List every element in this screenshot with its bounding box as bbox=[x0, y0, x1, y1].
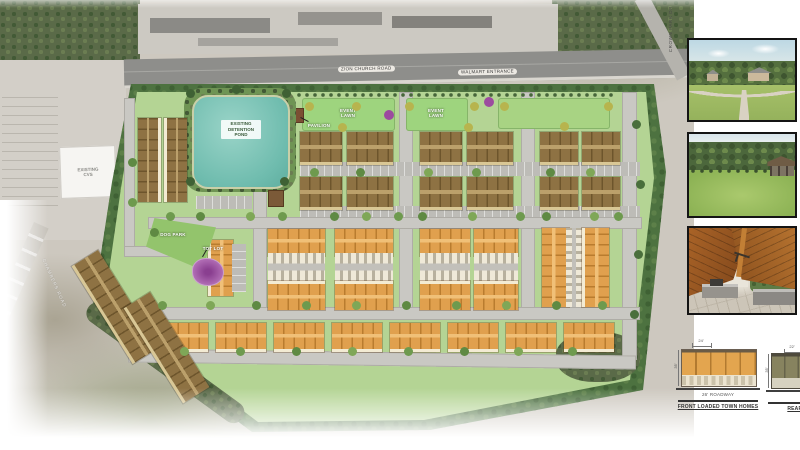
townhome-row-front bbox=[420, 229, 470, 256]
event-lawn-label-2: EVENT LAWN bbox=[424, 108, 448, 118]
photo1-treeline bbox=[689, 61, 795, 87]
townhome-row-front bbox=[335, 281, 393, 310]
garage-court bbox=[335, 253, 393, 281]
townhome-row-front bbox=[542, 228, 569, 307]
rear-title-bar bbox=[768, 402, 800, 404]
photo3-counter-left bbox=[702, 284, 738, 298]
townhome-row-front bbox=[268, 281, 325, 310]
front-elevation-building bbox=[682, 350, 756, 386]
townhome-row-rear bbox=[540, 132, 578, 165]
townhome-row-rear bbox=[420, 177, 462, 210]
photo3-counter-right bbox=[753, 289, 795, 305]
pond-label: EXISTING DETENTION POND bbox=[221, 120, 261, 139]
garage-court bbox=[420, 253, 470, 281]
townhome-row-front bbox=[506, 323, 556, 352]
townhome-row-front bbox=[274, 323, 324, 352]
townhome-row-front bbox=[390, 323, 440, 352]
entrance-road-label: WALMART ENTRANCE bbox=[458, 68, 517, 75]
townhome-row-front bbox=[582, 228, 609, 307]
event-lawn-label-1: EVENT LAWN bbox=[336, 108, 360, 118]
townhome-row-rear bbox=[138, 118, 161, 202]
existing-cvs-label: EXISTING CVS bbox=[74, 166, 102, 178]
photo-community-park bbox=[687, 38, 797, 122]
townhome-row-front bbox=[332, 323, 382, 352]
front-title-bar bbox=[678, 400, 758, 402]
photo2-lawn bbox=[689, 170, 795, 216]
photo1-hut-walls bbox=[707, 74, 718, 81]
townhome-row-rear bbox=[300, 177, 342, 210]
townhome-row-front bbox=[420, 281, 470, 310]
existing-cvs-building: EXISTING CVS bbox=[59, 145, 117, 199]
site-plan-sheet: EXISTING CVS CHAMBERS ROAD ZION CHURCH R… bbox=[0, 0, 800, 450]
main-road-label: ZION CHURCH ROAD bbox=[338, 65, 395, 72]
lawn-3 bbox=[498, 98, 610, 129]
front-garage-doors bbox=[682, 376, 756, 385]
front-ground-line bbox=[676, 388, 760, 390]
front-height-dim: 35' bbox=[674, 359, 678, 373]
townhome-row-rear bbox=[347, 177, 393, 210]
townhome-row-rear bbox=[164, 118, 187, 202]
dog-park-label: DOG PARK bbox=[156, 232, 190, 237]
existing-building bbox=[298, 12, 382, 25]
garage-court bbox=[566, 228, 582, 307]
pavilion-label: PAVILION bbox=[306, 123, 332, 128]
crown-park-label: CROWN PARK DR bbox=[668, 6, 673, 52]
existing-building bbox=[150, 18, 270, 33]
photo2-pavilion-posts bbox=[770, 166, 794, 176]
townhome-row-front bbox=[335, 229, 393, 256]
garage-court bbox=[268, 253, 325, 281]
parking-stripes bbox=[2, 96, 58, 206]
townhome-row-front bbox=[448, 323, 498, 352]
amenity-shed bbox=[268, 190, 284, 207]
existing-building bbox=[198, 38, 338, 46]
townhome-row-rear bbox=[420, 132, 462, 165]
tot-lot-playground bbox=[192, 258, 224, 286]
townhome-row-front bbox=[564, 323, 614, 352]
townhome-row-front bbox=[268, 229, 325, 256]
rear-street-label: 20' ALLEY bbox=[764, 394, 800, 399]
townhome-row-rear bbox=[300, 132, 342, 165]
tot-lot-label: TOT LOT bbox=[199, 246, 227, 251]
townhome-row-rear bbox=[347, 132, 393, 165]
townhome-row-rear bbox=[467, 177, 513, 210]
townhome-row-rear bbox=[582, 132, 620, 165]
fade-bottom bbox=[0, 388, 694, 450]
photo1-pavilion-walls bbox=[748, 73, 769, 81]
fade-top bbox=[0, 0, 694, 8]
road-lane-line bbox=[124, 61, 696, 73]
existing-building bbox=[392, 16, 492, 28]
parking-row bbox=[196, 196, 252, 209]
front-height-dimline bbox=[678, 350, 679, 386]
street-v1 bbox=[124, 98, 135, 250]
garage-court bbox=[474, 253, 518, 281]
photo-event-lawn bbox=[687, 132, 797, 218]
parking-row bbox=[232, 244, 246, 292]
front-width-dimline bbox=[692, 343, 712, 348]
townhome-row-rear bbox=[540, 177, 578, 210]
rear-elevation-building bbox=[772, 354, 800, 388]
detention-pond bbox=[192, 95, 290, 189]
rear-title: REAR LOADED TOWN HOMES bbox=[764, 406, 800, 412]
rear-height-dim: 35' bbox=[765, 363, 769, 377]
rear-ground-line bbox=[766, 390, 800, 392]
front-street-label: 26' ROADWAY bbox=[676, 392, 760, 397]
elevation-rear-loaded: 22' 35' 20' ALLEY REAR LOADED TOWN HOMES bbox=[764, 346, 800, 420]
townhome-row-front bbox=[216, 323, 266, 352]
townhome-row-rear bbox=[467, 132, 513, 165]
townhome-row-front bbox=[474, 281, 518, 310]
photo3-grill bbox=[710, 279, 723, 286]
photo-pavilion-interior bbox=[687, 226, 797, 315]
front-title: FRONT LOADED TOWN HOMES bbox=[670, 404, 766, 410]
townhome-row-front bbox=[474, 229, 518, 256]
townhome-row-rear bbox=[582, 177, 620, 210]
elevation-front-loaded: 24' 35' 26' ROADWAY FRONT LOADED TOWN HO… bbox=[676, 340, 760, 420]
